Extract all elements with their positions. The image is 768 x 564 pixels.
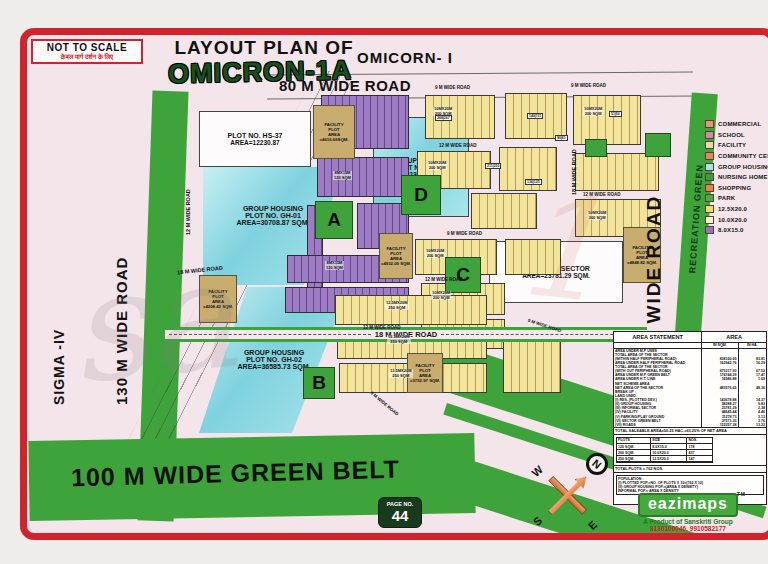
legend: COMMERCIAL SCHOOL FACILITY COMMUNITY CEN… <box>705 119 768 236</box>
facility-area: =4932.09 SQM. <box>380 261 412 266</box>
plot-size-label-8x15: 8MX15M 120 SQM <box>325 261 344 270</box>
legend-label: SHOPPING <box>718 185 751 191</box>
road-80m-label: 80 M WIDE ROAD <box>279 77 411 94</box>
plot-size-text: 200 SQM <box>432 296 450 301</box>
plot-count: 147 <box>687 456 712 462</box>
plot-number-chip: 268|267 <box>435 115 452 121</box>
plot-hs37: PLOT NO. HS-37 AREA=12230.87 <box>199 111 311 167</box>
legend-swatch <box>705 216 714 224</box>
compass-s: S <box>531 514 544 528</box>
plot-row-yellow <box>471 193 537 229</box>
legend-label: COMMERCIAL <box>718 121 761 127</box>
layout-plan-page: { "header": { "not_to_scale": "NOT TO SC… <box>0 0 768 564</box>
brand-product-line: A Product of Sanskriti Group <box>623 518 753 525</box>
area-row-label: (VII) ROADS <box>614 423 702 427</box>
park-square <box>585 139 607 157</box>
facility-area: =4616.66SQM. <box>314 137 354 142</box>
plots-table-rows: 120 SQM. 8.0X15.0 178 200 SQM. 10.0X20.0… <box>617 444 712 462</box>
recreation-green-label: RECREATION GREEN <box>687 164 705 274</box>
map-red-frame: NOT TO SCALE केवल मार्ग दर्शन के लिए LAY… <box>20 28 768 540</box>
plot-dimensions: 12.5X20.0 <box>651 456 687 462</box>
plot-size-label-12.5x20: 12.5MX20M 250 SQM <box>389 369 413 378</box>
legend-swatch <box>705 131 714 139</box>
facility-plot-left: FACILITY PLOT AREA =4208.42 SQM. <box>199 275 237 323</box>
legend-swatch <box>705 173 714 181</box>
area-rows: AREA UNDER M.P USES TOTAL AREA OF THE SE… <box>614 349 766 427</box>
gh02-line2: PLOT NO. GH-02 <box>199 356 349 363</box>
plots-table-row: 250 SQM. 12.5X20.0 147 <box>617 456 712 462</box>
plot-size-text: 250 SQM <box>388 340 410 345</box>
block-b: B <box>303 367 335 399</box>
area-row-sqm: 132257.38 <box>702 423 738 427</box>
area-statement-panel: AREA STATEMENT AREA IN SQM. IN HA. AREA … <box>613 331 767 505</box>
legend-item: 12.5X20.0 <box>705 204 768 215</box>
legend-item: NURSING HOME <box>705 172 768 183</box>
legend-swatch <box>705 163 714 171</box>
plot-hs37-area: AREA=12230.87 <box>200 139 310 146</box>
area-statement-title: AREA STATEMENT <box>614 332 702 342</box>
brand-block: eazimaps TM A Product of Sanskriti Group… <box>623 493 753 532</box>
compass-rose: N W S E <box>532 459 604 531</box>
plot-size-label-10x20: 10MX20M 200 SQM <box>425 249 445 258</box>
saleable-area-line: TOTAL SALEABLE AREA=50.25 HAC.=63.25% OF… <box>614 427 766 435</box>
road-9m-label: 9 M WIDE ROAD <box>571 83 606 88</box>
facility-area: =4208.42 SQM. <box>200 304 236 309</box>
plot-size-text: 200 SQM <box>584 112 602 117</box>
legend-item: COMMERCIAL <box>705 119 768 130</box>
legend-swatch <box>705 226 714 234</box>
area-row: (VII) ROADS 132257.38 13.22 <box>614 423 766 427</box>
block-c: C <box>445 257 481 293</box>
plots-table: PLOTS SIZE NOS. 120 SQM. 8.0X15.0 178 20… <box>616 437 713 464</box>
area-statement-header: AREA STATEMENT AREA <box>614 332 766 343</box>
page-number: 44 <box>383 507 417 524</box>
road-12m-label: 12 M WIDE ROAD <box>363 325 401 330</box>
plot-hs37-name: PLOT NO. HS-37 <box>200 132 310 139</box>
compass-north-circle: N <box>586 453 608 475</box>
plot-size-text: 250 SQM <box>386 306 408 311</box>
page-number-badge: PAGE NO. 44 <box>378 497 422 528</box>
road-dash-line <box>169 334 371 335</box>
facility-area: =3752.97 SQM. <box>408 378 442 383</box>
plot-size-text: 120 SQM <box>334 176 351 181</box>
plot-size-label-10x20: 10MX20M 200 SQM <box>583 107 603 116</box>
block-a: A <box>315 201 353 239</box>
legend-swatch <box>705 141 714 149</box>
trademark: TM <box>737 491 746 497</box>
brand-phones: 8130100046, 9910582177 <box>623 525 753 532</box>
road-18m-label-vertical: 18 M WIDE ROAD <box>571 135 577 195</box>
legend-label: 8.0X15.0 <box>718 227 744 233</box>
plot-number-chip: 51|50 <box>609 111 622 117</box>
legend-swatch <box>705 152 714 160</box>
plot-size-text: 250 SQM <box>390 374 412 379</box>
legend-item: FACILITY <box>705 140 768 151</box>
plot-size-text: 120 SQM <box>326 266 343 271</box>
compass-w: W <box>529 463 545 479</box>
legend-label: COMMUNITY CENTRE <box>718 153 768 159</box>
plot-size-text: 200 SQM <box>588 216 606 221</box>
plot-size-sqm: 250 SQM. <box>617 456 651 462</box>
plot-size-label-10x20: 10MX20M 200 SQM <box>587 211 607 220</box>
legend-label: 10.0X20.0 <box>718 217 747 223</box>
plot-number-chip: 136|125 <box>525 179 542 185</box>
plot-number-chip: 211|210 <box>485 163 501 169</box>
legend-label: PARK <box>718 195 735 201</box>
legend-item: GROUP HOUSING <box>705 161 768 172</box>
road-9m-label: 9 M WIDE ROAD <box>369 390 399 416</box>
road-12m-label: 12 M WIDE ROAD <box>425 277 463 282</box>
adjacent-sector-label: OMICORN- I <box>357 49 453 66</box>
legend-item: 10.0X20.0 <box>705 214 768 225</box>
plot-row-purple <box>317 157 409 197</box>
total-plots-line: TOTAL PLOTS = 762 NOS. <box>614 465 766 473</box>
area-row-ha: 13.22 <box>739 423 766 427</box>
road-12m-label: 12 M WIDE ROAD <box>439 143 477 148</box>
legend-item: COMMUNITY CENTRE <box>705 151 768 162</box>
plot-size-label-12.5x20: 12.5MX20M 250 SQM <box>385 301 409 310</box>
facility-plot-mid: FACILITY PLOT AREA =4932.09 SQM. <box>379 233 413 279</box>
col-in-sqm: IN SQM. <box>702 343 738 347</box>
road-9m-label: 9 M WIDE ROAD <box>435 85 470 90</box>
road-12m-label-vertical: 12 M WIDE ROAD <box>185 165 191 235</box>
facility-plot-top: FACILITY PLOT AREA =4616.66SQM. <box>313 105 355 159</box>
legend-swatch <box>705 184 714 192</box>
plot-size-text: 200 SQM <box>426 254 444 259</box>
plot-size-label-10x20: 10MX20M 200 SQM <box>427 161 447 170</box>
legend-label: SCHOOL <box>718 132 745 138</box>
road-130m-label: 130 M WIDE ROAD <box>113 155 130 405</box>
legend-label: NURSING HOME <box>718 174 768 180</box>
legend-item: SHOPPING <box>705 183 768 194</box>
not-to-scale-box: NOT TO SCALE केवल मार्ग दर्शन के लिए <box>31 39 143 64</box>
legend-label: FACILITY <box>718 142 746 148</box>
plot-row-yellow <box>505 239 561 275</box>
legend-item: PARK <box>705 193 768 204</box>
plot-size-label-8x15: 8MX15M 120 SQM <box>333 171 352 180</box>
plot-number-chip: 140|111 <box>527 113 543 119</box>
plot-row-yellow <box>573 95 641 145</box>
legend-swatch <box>705 120 714 128</box>
plot-size-label-12.5x20: 12.5MX20M 250 SQM <box>387 335 411 344</box>
not-to-scale-hindi: केवल मार्ग दर्शन के लिए <box>37 53 137 61</box>
plot-number-chip: 90|61 <box>555 135 568 141</box>
area-col-title: AREA <box>702 332 766 342</box>
plot-row-yellow <box>335 295 487 325</box>
legend-label: GROUP HOUSING <box>718 164 768 170</box>
legend-item: 8.0X15.0 <box>705 225 768 236</box>
plot-size-text: 200 SQM <box>428 166 446 171</box>
plot-size-label-10x20: 10MX20M 200 SQM <box>431 291 451 300</box>
legend-item: SCHOOL <box>705 130 768 141</box>
road-12m-label: 12 M WIDE ROAD <box>583 192 621 197</box>
compass-e: E <box>586 518 599 532</box>
legend-label: 12.5X20.0 <box>718 206 747 212</box>
col-in-ha: IN HA. <box>739 343 766 347</box>
road-9m-label: 9 M WIDE ROAD <box>447 231 482 236</box>
block-d: D <box>401 175 441 215</box>
compass-n: N <box>590 457 604 471</box>
brand-logo: eazimaps TM <box>638 493 738 517</box>
not-to-scale-text: NOT TO SCALE <box>37 42 137 53</box>
area-subheader-spacer <box>614 343 702 347</box>
legend-swatch <box>705 205 714 213</box>
sigma-iv-label: SIGMA -IV <box>51 175 67 405</box>
legend-swatch <box>705 194 714 202</box>
brand-name: eazimaps <box>648 495 728 512</box>
